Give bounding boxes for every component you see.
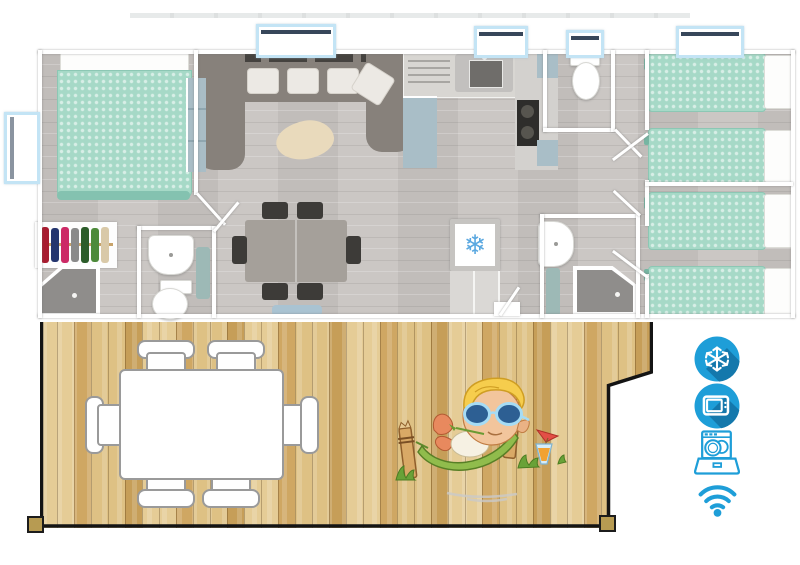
elf-arm xyxy=(433,414,452,434)
wifi-icon xyxy=(694,477,741,518)
clothes-item xyxy=(71,228,79,262)
kitchen-bar-cabinet xyxy=(403,96,437,168)
snowflake-icon xyxy=(694,336,740,382)
table-seam xyxy=(295,220,297,282)
toilet-2-bowl xyxy=(572,62,600,100)
window-kitchen xyxy=(474,26,528,58)
dining-chair xyxy=(346,236,361,264)
wall-wc1-top xyxy=(137,226,216,230)
cocktail xyxy=(536,430,558,464)
washbasin-1 xyxy=(148,235,194,275)
single-bed-pillow xyxy=(764,268,794,316)
single-bed-2 xyxy=(648,128,766,185)
single-bed-pillow xyxy=(764,55,794,109)
dining-chair xyxy=(262,283,288,300)
wall-hallway-lower xyxy=(645,274,649,318)
wardrobe xyxy=(35,222,117,268)
wall-outer-left xyxy=(38,50,42,318)
kitchen-sink xyxy=(455,54,513,92)
clothes-item xyxy=(81,227,89,263)
single-bed-pillow xyxy=(764,194,794,248)
window-frame-bar xyxy=(261,30,331,34)
bed-foot-throw xyxy=(57,191,190,200)
dining-chair xyxy=(232,236,247,264)
tv-icon xyxy=(694,383,740,429)
clothes-item xyxy=(51,228,59,262)
wall-showerroom-left xyxy=(540,214,544,318)
single-bed-4 xyxy=(648,266,766,318)
sink-basin xyxy=(469,60,503,88)
roof-edge xyxy=(130,13,690,18)
shower-right-tray xyxy=(577,270,633,312)
deck-table xyxy=(119,369,284,480)
amenity-dishwasher xyxy=(694,430,744,476)
bath-mat-2 xyxy=(546,268,560,316)
single-bed-1 xyxy=(648,53,766,112)
amenity-air-conditioning xyxy=(694,336,744,382)
mascot-shadow xyxy=(447,493,517,501)
window-frame-bar xyxy=(571,36,599,40)
single-bed-pillow xyxy=(764,130,794,183)
window-living xyxy=(256,24,336,58)
window-frame-bar xyxy=(479,32,523,36)
dining-table xyxy=(245,220,347,282)
wall-bedroom-divider xyxy=(645,182,793,186)
bath-mat-1 xyxy=(196,247,210,299)
clothes-item xyxy=(101,227,109,263)
fridge-door: ❄ xyxy=(455,224,495,266)
window-wc xyxy=(566,30,604,58)
wall-master-living xyxy=(194,50,198,195)
window-bedroom xyxy=(676,26,744,58)
grass-tuft xyxy=(518,455,539,468)
deck-post xyxy=(599,515,616,532)
clothes-item xyxy=(41,227,49,263)
sofa-cushion xyxy=(247,68,279,94)
fridge-snowflake-icon: ❄ xyxy=(455,224,495,266)
single-bed-3 xyxy=(648,192,766,250)
wall-hallway-upper xyxy=(645,50,649,130)
basin-drain xyxy=(554,242,558,246)
shower-left-tray xyxy=(42,269,96,313)
deck-chair-back xyxy=(300,396,319,454)
clothes-item xyxy=(61,227,69,263)
wall-showerroom-right xyxy=(636,214,640,318)
window-frame-bar xyxy=(681,32,739,36)
dining-chair xyxy=(297,283,323,300)
wall-showerroom-top xyxy=(540,214,640,218)
wall-wc2-left xyxy=(543,50,547,132)
kitchen-accent-bottom xyxy=(537,140,558,166)
deck-post xyxy=(27,516,44,533)
window-frame-bar xyxy=(10,117,14,179)
kitchen-accent-top xyxy=(537,52,558,78)
wall-outer-bottom xyxy=(38,314,795,318)
fridge: ❄ xyxy=(450,219,500,271)
sofa-cushion xyxy=(287,68,319,94)
dishwasher-icon xyxy=(694,430,740,475)
grass-tuft xyxy=(558,455,566,464)
dining-chair xyxy=(262,202,288,219)
window-master-left xyxy=(4,112,40,184)
double-bed xyxy=(57,70,192,199)
mascot-elf-hammock xyxy=(372,372,572,512)
wall-wc1-left xyxy=(137,226,141,318)
amenity-wifi xyxy=(694,477,744,519)
burner xyxy=(521,105,534,118)
cabinet-below-fridge xyxy=(450,271,500,316)
mobile-home-floorplan-scene: ❄ xyxy=(0,0,800,565)
deck-chair-back xyxy=(137,489,195,508)
wall-wc2-bottom xyxy=(543,128,615,132)
burner xyxy=(521,126,534,139)
wall-wc1-right xyxy=(212,226,216,318)
drainboard xyxy=(408,60,450,88)
clothes-item xyxy=(91,228,99,262)
amenity-television xyxy=(694,383,744,429)
shower-drain xyxy=(72,293,77,298)
hob xyxy=(517,100,539,146)
basin-drain xyxy=(169,253,173,257)
deck-chair-back xyxy=(202,489,260,508)
wall-wc2-right xyxy=(611,50,615,132)
wall-hallway-middle xyxy=(645,180,649,226)
elf-arm xyxy=(435,436,452,450)
dining-chair xyxy=(297,202,323,219)
shower-drain xyxy=(615,292,620,297)
